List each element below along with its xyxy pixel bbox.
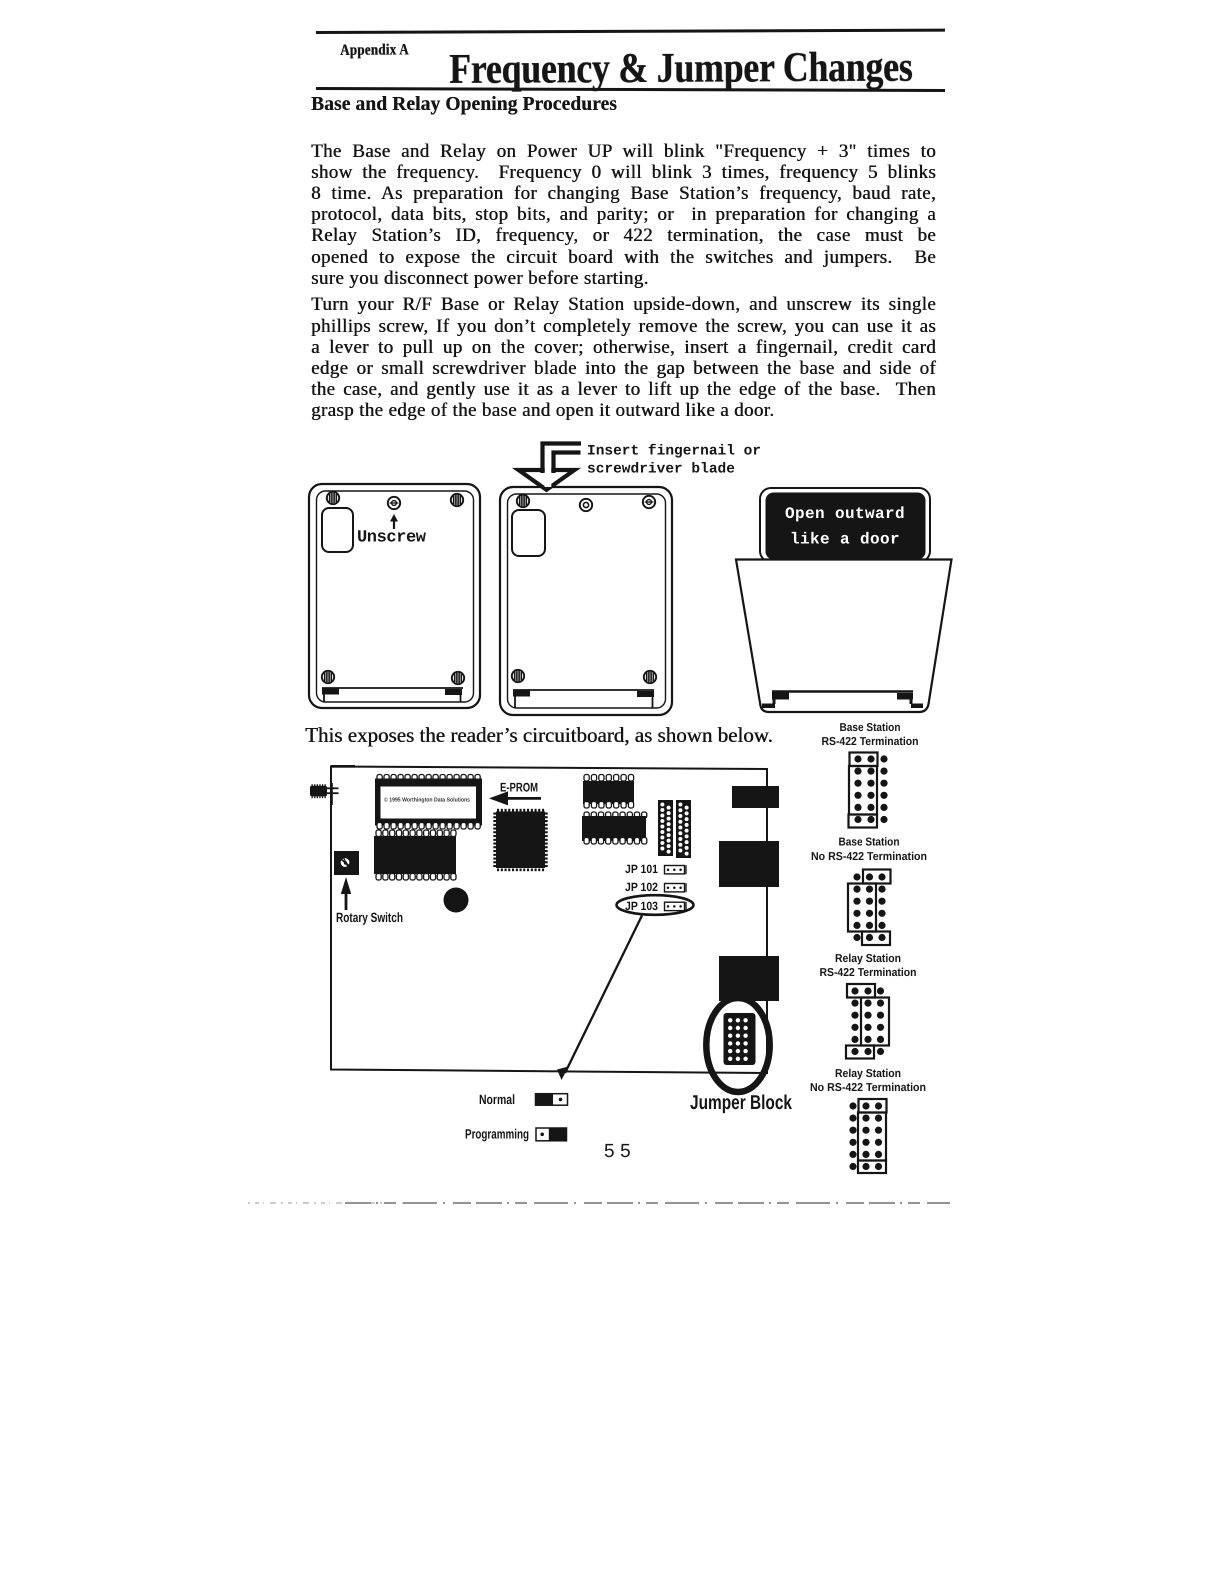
- svg-text:Unscrew: Unscrew: [357, 529, 427, 548]
- svg-text:Programming: Programming: [465, 1127, 529, 1142]
- svg-text:JP 101: JP 101: [625, 862, 658, 876]
- svg-text:No RS-422 Termination: No RS-422 Termination: [810, 1082, 926, 1094]
- svg-text:No RS-422 Termination: No RS-422 Termination: [811, 851, 927, 863]
- svg-text:© 1995 Worthington Data Soluti: © 1995 Worthington Data Solutions: [384, 797, 470, 804]
- svg-text:Base Station: Base Station: [840, 722, 901, 734]
- svg-text:Base Station: Base Station: [839, 837, 900, 849]
- svg-text:Jumper Block: Jumper Block: [690, 1092, 793, 1114]
- svg-text:Open outward: Open outward: [785, 505, 905, 523]
- svg-text:like a door: like a door: [790, 531, 900, 549]
- svg-text:RS-422 Termination: RS-422 Termination: [822, 736, 919, 748]
- svg-text:55: 55: [604, 1141, 636, 1162]
- svg-text:JP 102: JP 102: [625, 880, 658, 894]
- svg-text:Rotary Switch: Rotary Switch: [336, 910, 403, 925]
- svg-text:Relay Station: Relay Station: [835, 953, 901, 965]
- svg-text:Normal: Normal: [479, 1092, 515, 1107]
- svg-text:RS-422 Termination: RS-422 Termination: [820, 967, 917, 979]
- svg-text:JP 103: JP 103: [625, 899, 658, 913]
- svg-text:Insert fingernail or: Insert fingernail or: [587, 444, 761, 460]
- svg-text:Relay Station: Relay Station: [835, 1068, 901, 1080]
- svg-text:screwdriver blade: screwdriver blade: [587, 462, 735, 478]
